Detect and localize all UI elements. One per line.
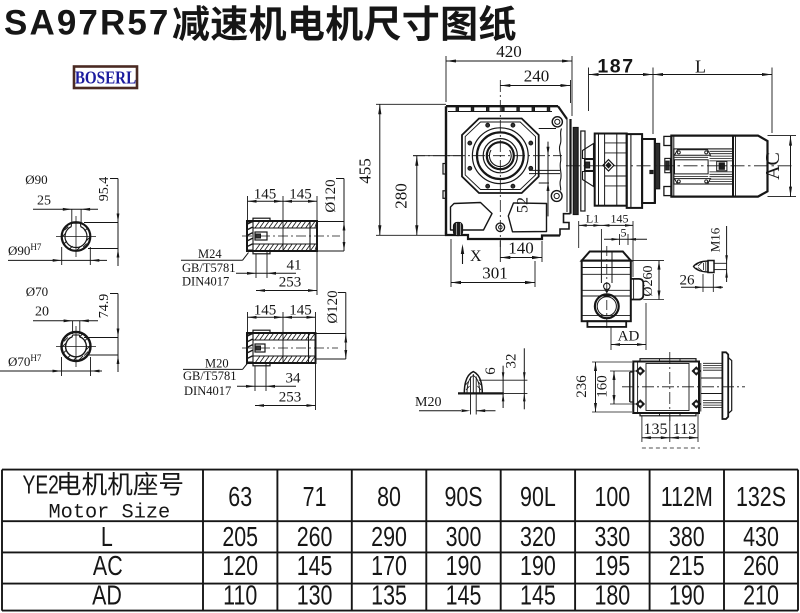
- svg-text:90L: 90L: [520, 481, 556, 513]
- svg-text:145: 145: [297, 550, 333, 582]
- svg-text:80: 80: [377, 481, 401, 513]
- svg-text:AC: AC: [762, 152, 784, 180]
- svg-text:34: 34: [286, 371, 302, 387]
- svg-text:52: 52: [515, 197, 532, 213]
- svg-text:32: 32: [504, 354, 520, 369]
- svg-text:180: 180: [594, 580, 630, 612]
- svg-text:320: 320: [520, 521, 556, 553]
- svg-text:63: 63: [228, 481, 252, 513]
- svg-text:145: 145: [254, 187, 277, 203]
- svg-text:300: 300: [446, 521, 482, 553]
- svg-text:L1: L1: [586, 212, 599, 226]
- svg-text:301: 301: [482, 264, 508, 283]
- svg-text:GB/T5781: GB/T5781: [182, 261, 235, 275]
- svg-text:160: 160: [595, 375, 611, 398]
- svg-text:M24: M24: [198, 247, 222, 261]
- svg-text:190: 190: [446, 550, 482, 582]
- svg-text:145: 145: [254, 303, 277, 319]
- svg-text:Ø120: Ø120: [325, 290, 341, 323]
- svg-text:145: 145: [520, 580, 556, 612]
- svg-text:430: 430: [743, 521, 779, 553]
- svg-text:253: 253: [279, 390, 302, 406]
- svg-text:Ø260: Ø260: [641, 265, 656, 296]
- svg-text:AD: AD: [618, 329, 640, 345]
- svg-text:41: 41: [287, 258, 302, 274]
- svg-text:135: 135: [644, 421, 668, 438]
- svg-text:YE2: YE2: [23, 470, 59, 500]
- svg-text:140: 140: [508, 239, 534, 258]
- svg-text:260: 260: [297, 521, 333, 553]
- svg-text:195: 195: [594, 550, 630, 582]
- svg-text:GB/T5781: GB/T5781: [183, 369, 236, 383]
- svg-text:455: 455: [356, 158, 375, 184]
- svg-text:BOSERL: BOSERL: [75, 67, 136, 88]
- svg-text:145: 145: [611, 212, 629, 226]
- svg-text:210: 210: [743, 580, 779, 612]
- svg-text:SA97R57: SA97R57: [4, 4, 170, 43]
- svg-text:DIN4017: DIN4017: [184, 384, 231, 398]
- svg-text:AC: AC: [93, 550, 123, 582]
- svg-text:M16: M16: [708, 227, 723, 252]
- svg-text:74.9: 74.9: [97, 294, 112, 319]
- svg-text:113: 113: [673, 421, 696, 438]
- svg-text:71: 71: [303, 481, 327, 513]
- svg-text:290: 290: [371, 521, 407, 553]
- svg-text:145: 145: [446, 580, 482, 612]
- svg-text:280: 280: [392, 183, 411, 209]
- svg-text:170: 170: [371, 550, 407, 582]
- svg-text:M20: M20: [415, 395, 441, 410]
- svg-text:110: 110: [223, 580, 257, 612]
- svg-text:205: 205: [222, 521, 258, 553]
- svg-text:6: 6: [483, 367, 499, 375]
- svg-text:AD: AD: [92, 580, 122, 612]
- svg-text:Ø70: Ø70: [26, 284, 48, 299]
- svg-text:100: 100: [594, 481, 630, 513]
- svg-text:330: 330: [594, 521, 630, 553]
- svg-text:380: 380: [669, 521, 705, 553]
- svg-text:90S: 90S: [444, 481, 482, 513]
- svg-text:420: 420: [496, 42, 522, 61]
- svg-text:132S: 132S: [736, 481, 786, 513]
- svg-text:190: 190: [520, 550, 556, 582]
- svg-text:215: 215: [669, 550, 705, 582]
- svg-text:112M: 112M: [661, 481, 713, 513]
- svg-text:145: 145: [289, 303, 312, 319]
- svg-text:26: 26: [680, 273, 696, 289]
- svg-text:95.4: 95.4: [97, 177, 112, 202]
- svg-text:20: 20: [35, 305, 49, 320]
- svg-text:5: 5: [621, 226, 627, 240]
- svg-text:190: 190: [669, 580, 705, 612]
- svg-text:X: X: [470, 248, 482, 265]
- svg-text:Ø120: Ø120: [323, 179, 339, 212]
- svg-text:236: 236: [574, 375, 590, 398]
- svg-text:DIN4017: DIN4017: [182, 275, 229, 289]
- svg-text:130: 130: [297, 580, 333, 612]
- svg-text:L: L: [101, 521, 113, 553]
- svg-text:260: 260: [743, 550, 779, 582]
- svg-text:L: L: [695, 57, 706, 77]
- svg-text:120: 120: [222, 550, 258, 582]
- svg-text:25: 25: [37, 194, 51, 209]
- svg-text:240: 240: [524, 67, 550, 86]
- svg-text:135: 135: [371, 580, 407, 612]
- svg-text:Ø90: Ø90: [25, 172, 47, 187]
- svg-text:253: 253: [279, 275, 302, 291]
